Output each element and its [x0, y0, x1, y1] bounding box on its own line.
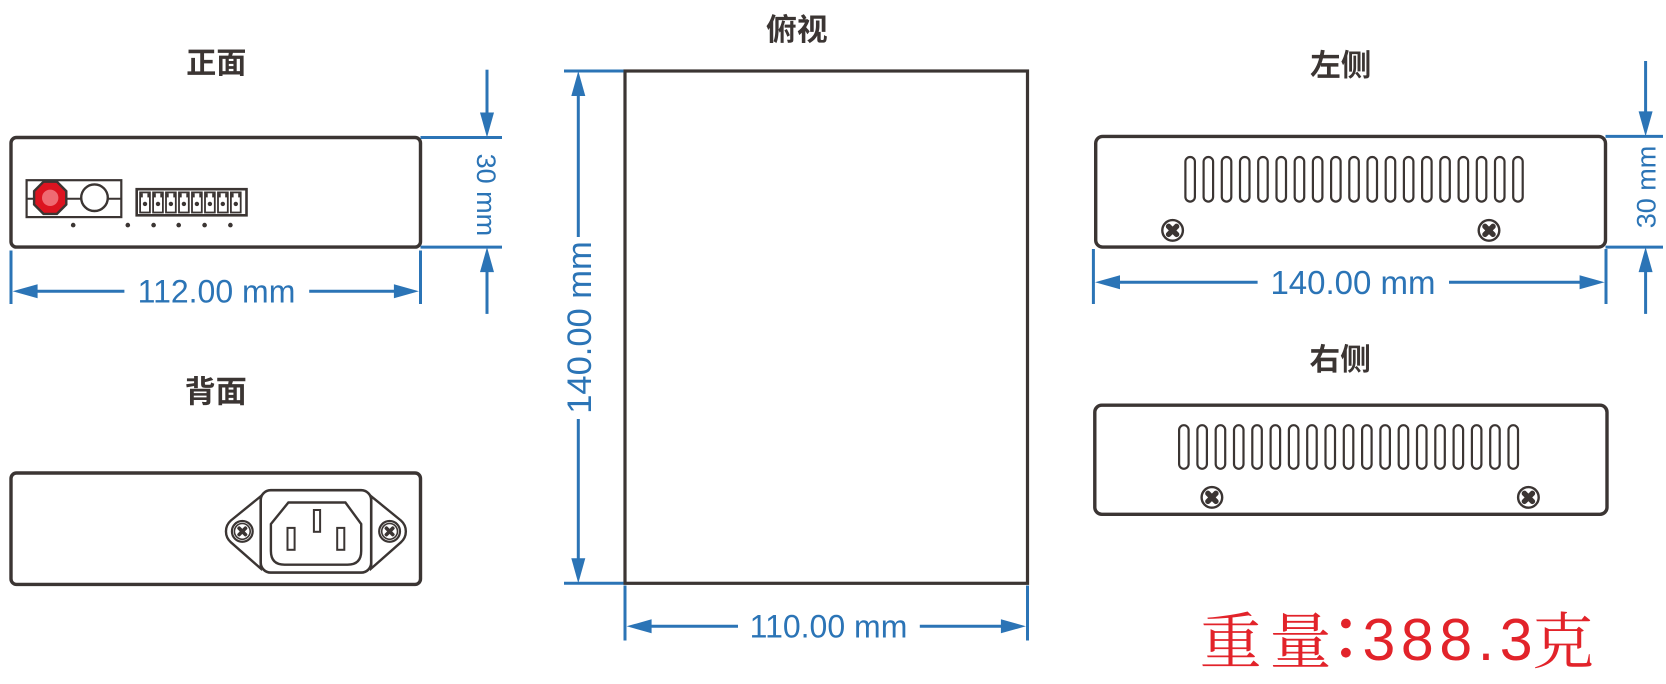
svg-text:388.3: 388.3 — [1363, 607, 1539, 673]
svg-text:140.00 mm: 140.00 mm — [1270, 264, 1435, 301]
svg-text:30 mm: 30 mm — [1631, 146, 1661, 229]
svg-text:110.00 mm: 110.00 mm — [750, 609, 908, 645]
svg-text:30 mm: 30 mm — [471, 154, 501, 237]
svg-text:112.00 mm: 112.00 mm — [138, 273, 296, 309]
svg-text:140.00 mm: 140.00 mm — [561, 241, 599, 414]
